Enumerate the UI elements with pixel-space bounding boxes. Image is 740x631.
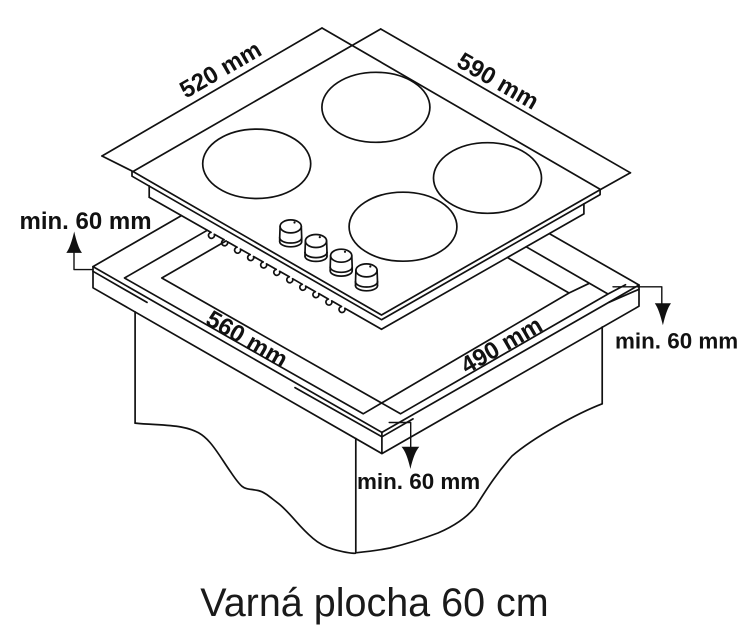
svg-text:590 mm: 590 mm bbox=[452, 47, 543, 115]
svg-text:min. 60 mm: min. 60 mm bbox=[615, 329, 738, 354]
svg-text:Varná plocha 60 cm: Varná plocha 60 cm bbox=[200, 581, 548, 625]
svg-text:560 mm: 560 mm bbox=[201, 305, 292, 373]
svg-text:520 mm: 520 mm bbox=[175, 36, 266, 104]
svg-text:min. 60 mm: min. 60 mm bbox=[357, 469, 480, 494]
svg-text:min. 60 mm: min. 60 mm bbox=[20, 208, 152, 235]
